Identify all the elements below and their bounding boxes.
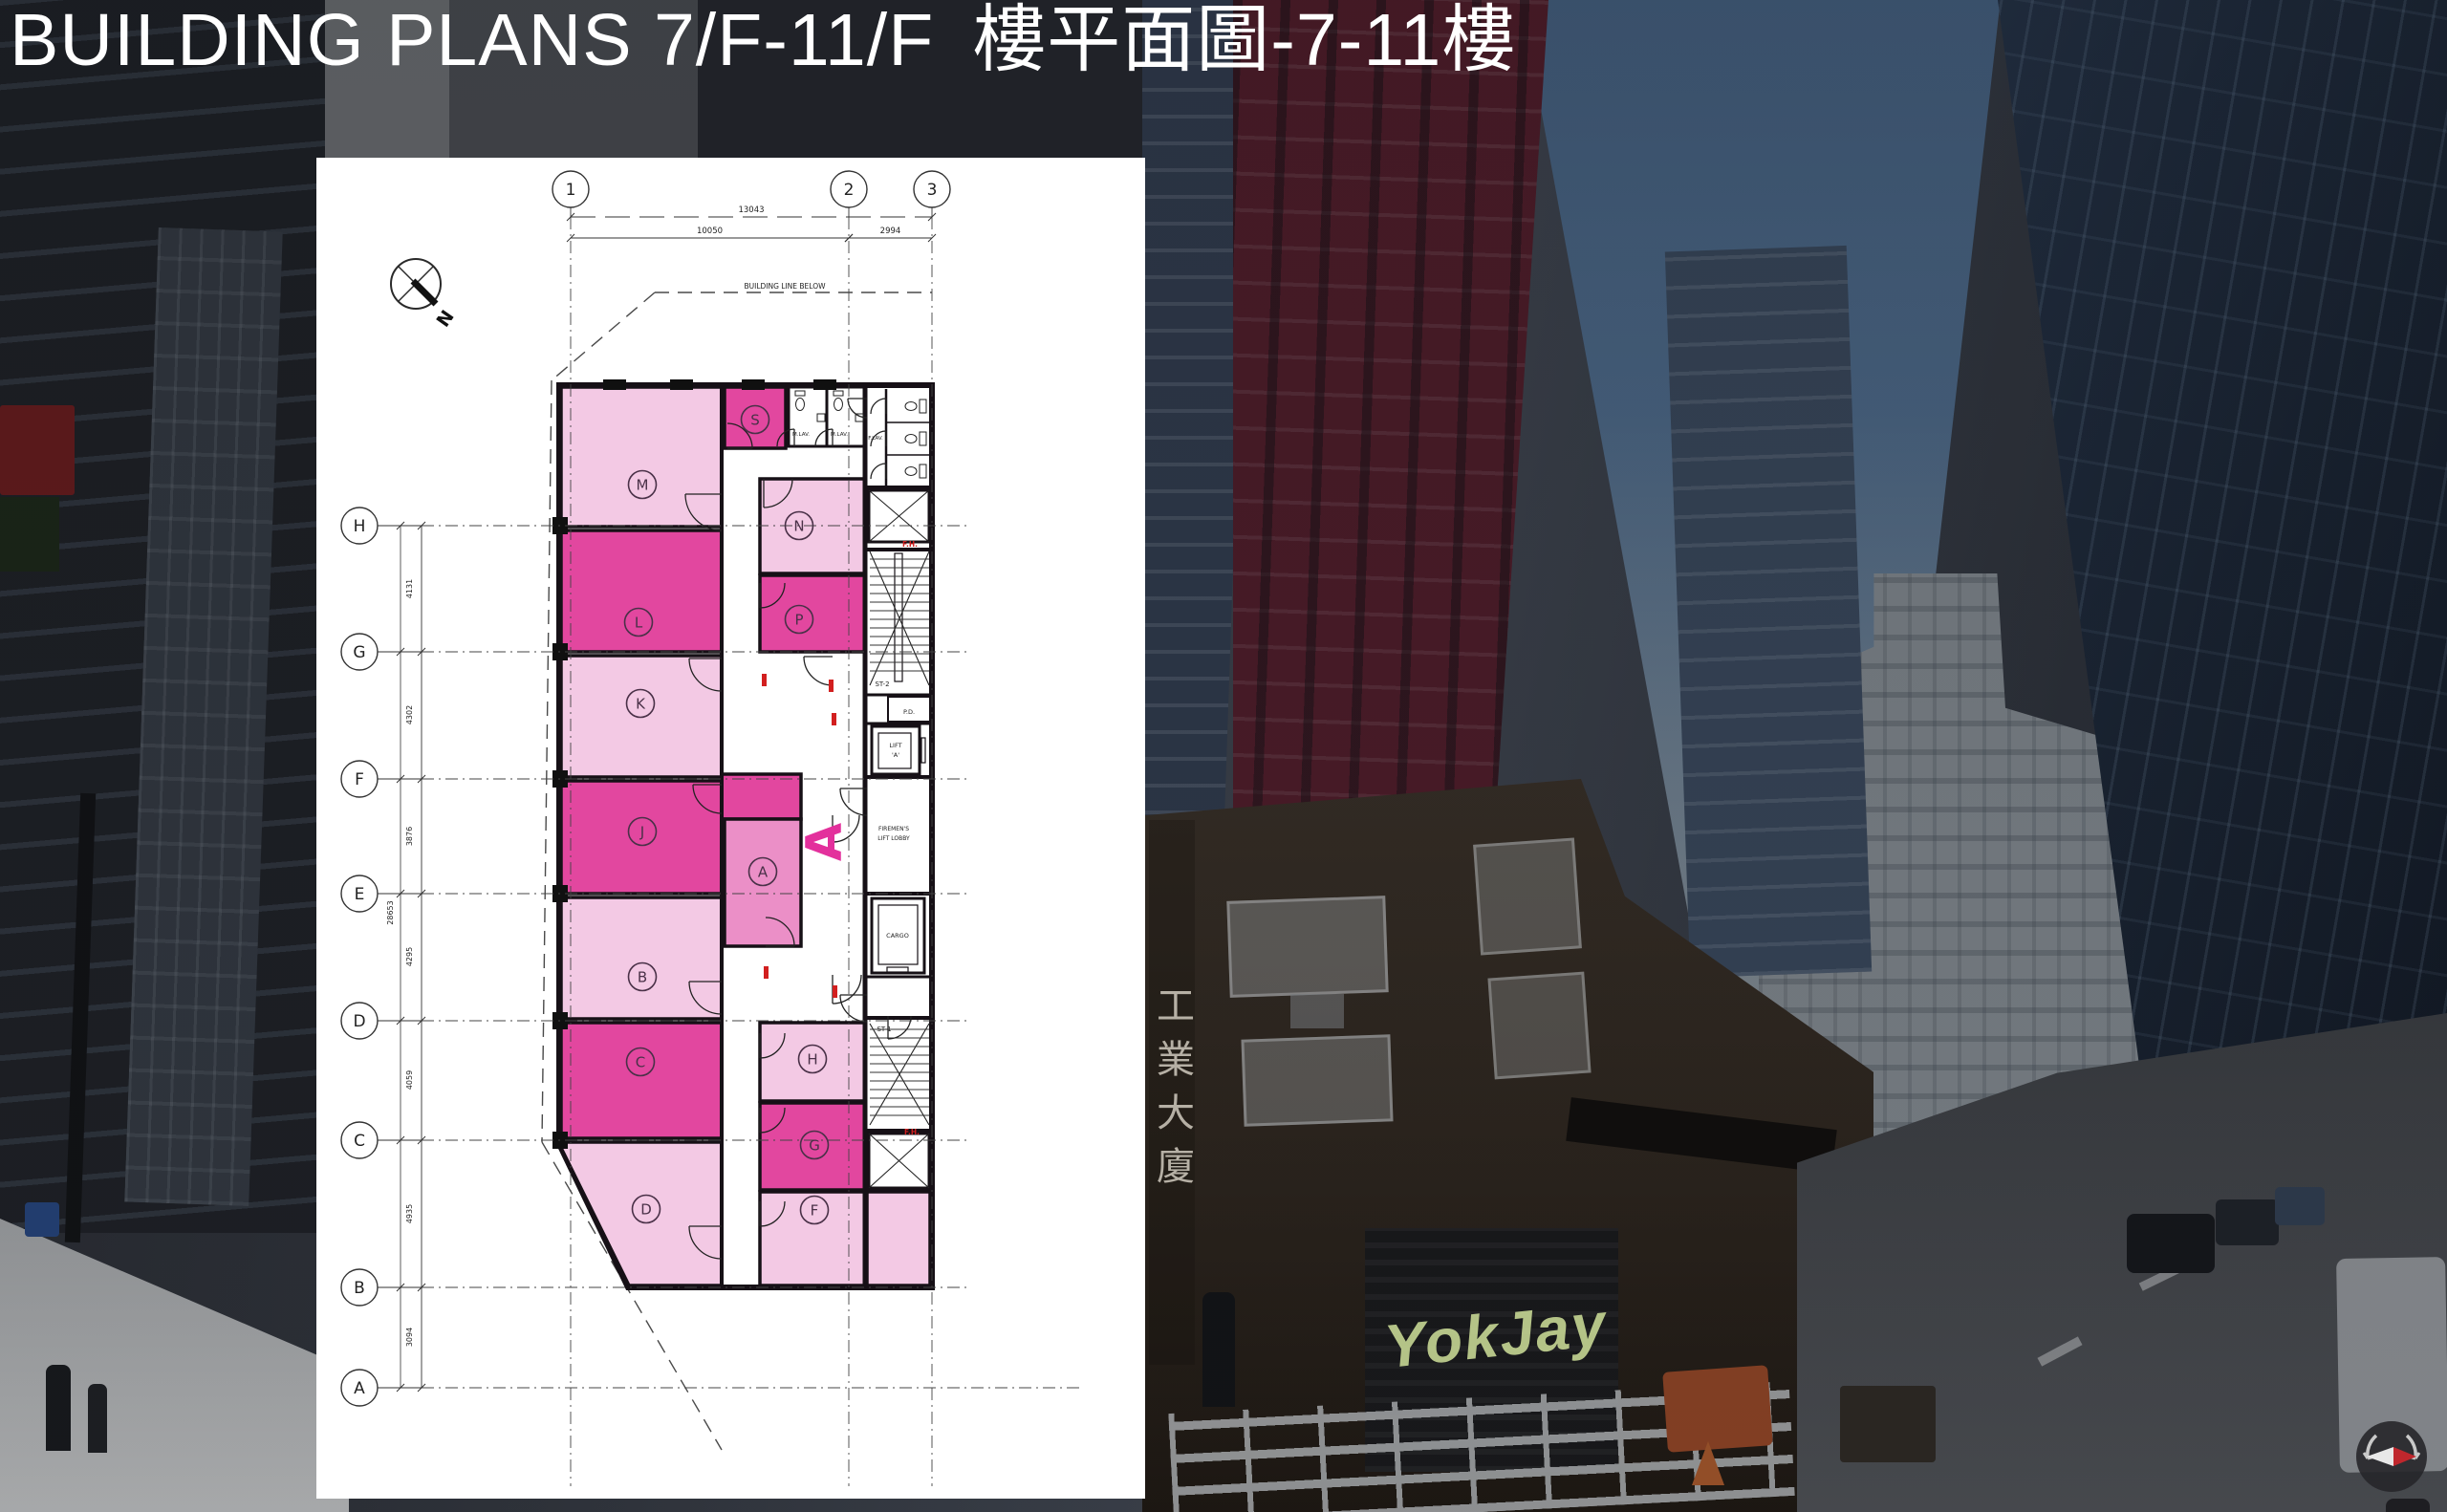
photo-car-3 xyxy=(2275,1187,2325,1225)
svg-text:F: F xyxy=(355,770,364,789)
streetview-rotate-control[interactable] xyxy=(2355,1420,2428,1493)
photo-old-window xyxy=(1226,896,1388,998)
core-label: LIFT LOBBY xyxy=(877,835,910,842)
core-label: P.D. xyxy=(903,708,915,716)
svg-text:3876: 3876 xyxy=(405,827,414,846)
svg-text:2994: 2994 xyxy=(880,227,901,236)
photo-car-2 xyxy=(2216,1199,2279,1245)
north-compass-icon: N xyxy=(391,259,459,331)
room-B xyxy=(561,897,722,1019)
core-label: M.LAV. xyxy=(831,432,848,438)
svg-text:4295: 4295 xyxy=(405,947,414,966)
svg-text:13043: 13043 xyxy=(738,205,764,215)
core-label: ST-1 xyxy=(877,1026,891,1033)
floorplan-panel: HGFEDCBA12313043100502994413143023876429… xyxy=(316,158,1145,1499)
fire-door-marker xyxy=(764,966,769,979)
room-label-A: A xyxy=(758,864,769,881)
slide-title-zh: 樓平面圖-7-11樓 xyxy=(972,0,1516,81)
fire-door-marker xyxy=(833,985,837,998)
svg-text:2: 2 xyxy=(844,181,855,200)
svg-text:H: H xyxy=(354,517,366,536)
room-label-B: B xyxy=(638,969,647,986)
photo-orange-barrier xyxy=(1662,1365,1773,1452)
core-label: 'A' xyxy=(892,751,899,759)
svg-text:3094: 3094 xyxy=(405,1328,414,1347)
svg-text:3: 3 xyxy=(927,181,938,200)
svg-text:A: A xyxy=(354,1379,365,1398)
room-C xyxy=(561,1023,722,1138)
photo-parking-sign xyxy=(25,1202,59,1237)
core-label: FIREMEN'S xyxy=(878,826,909,832)
room-label-M: M xyxy=(637,477,649,494)
svg-text:28653: 28653 xyxy=(386,900,395,924)
room-label-D: D xyxy=(640,1201,652,1219)
photo-red-shop-sign xyxy=(0,405,75,495)
room-label-L: L xyxy=(635,615,643,632)
streetview-control-partial[interactable] xyxy=(2386,1499,2430,1512)
room-L xyxy=(561,530,722,652)
slide-title: BUILDING PLANS 7/F-11/F樓平面圖-7-11樓 xyxy=(10,0,1516,86)
fire-door-marker xyxy=(832,713,836,725)
svg-text:1: 1 xyxy=(566,181,576,200)
fire-hydrant-label: F.H. xyxy=(902,540,918,549)
svg-text:4935: 4935 xyxy=(405,1204,414,1223)
core-label: BUILDING LINE BELOW xyxy=(744,282,826,291)
core-label: CARGO xyxy=(886,932,909,940)
floorplan-drawing: HGFEDCBA12313043100502994413143023876429… xyxy=(316,158,1145,1499)
room-label-J: J xyxy=(639,824,644,841)
svg-text:4059: 4059 xyxy=(405,1070,414,1090)
photo-ac-unit xyxy=(1290,994,1344,1028)
room-label-F: F xyxy=(811,1202,819,1220)
room-M xyxy=(561,387,722,527)
room-label-G: G xyxy=(809,1137,820,1155)
room-label-C: C xyxy=(636,1054,645,1071)
room-label-H: H xyxy=(807,1051,817,1069)
photo-green-shop-sign xyxy=(0,497,59,572)
core-label: LIFT xyxy=(889,742,901,749)
svg-text:C: C xyxy=(354,1132,365,1151)
room-A xyxy=(725,819,801,946)
photo-car xyxy=(2127,1214,2215,1273)
svg-text:E: E xyxy=(355,885,365,904)
room-K xyxy=(561,656,722,777)
svg-text:N: N xyxy=(433,307,459,332)
room-label-P: P xyxy=(794,612,803,629)
svg-text:10050: 10050 xyxy=(697,227,723,236)
photo-old-window-2 xyxy=(1241,1034,1393,1126)
building-vertical-sign: 工業大廈 xyxy=(1149,820,1195,1365)
photo-pedestrian xyxy=(46,1365,71,1451)
photo-pedestrian-2 xyxy=(88,1384,107,1453)
compass-needle-icon xyxy=(2355,1420,2428,1493)
svg-text:4302: 4302 xyxy=(405,705,414,724)
fire-hydrant-label: F.H. xyxy=(904,1128,920,1136)
room-label-N: N xyxy=(793,518,804,535)
room-label-K: K xyxy=(636,696,646,713)
photo-glass-slab xyxy=(1665,246,1872,978)
slide: YokJay 工業大廈 BUILDING PLANS 7/F-11/F樓平面圖-… xyxy=(0,0,2447,1512)
fire-door-marker xyxy=(829,680,834,692)
photo-shop-person xyxy=(1202,1292,1235,1407)
fire-door-marker xyxy=(762,674,767,686)
section-marker-a: A xyxy=(796,823,854,861)
photo-old-window-4 xyxy=(1487,972,1591,1080)
svg-text:G: G xyxy=(353,643,365,662)
room-E2 xyxy=(867,1192,930,1285)
core-label: F.LAV. xyxy=(868,436,883,442)
svg-text:D: D xyxy=(353,1012,365,1031)
room-label-S: S xyxy=(750,412,760,429)
photo-cart xyxy=(1840,1386,1936,1462)
core-label: M.LAV. xyxy=(792,432,810,438)
photo-old-window-3 xyxy=(1473,837,1582,955)
core-label: ST-2 xyxy=(875,680,889,688)
room-X1 xyxy=(722,774,801,819)
slide-title-en: BUILDING PLANS 7/F-11/F xyxy=(10,0,934,81)
svg-text:4131: 4131 xyxy=(405,579,414,598)
svg-text:B: B xyxy=(354,1279,365,1298)
